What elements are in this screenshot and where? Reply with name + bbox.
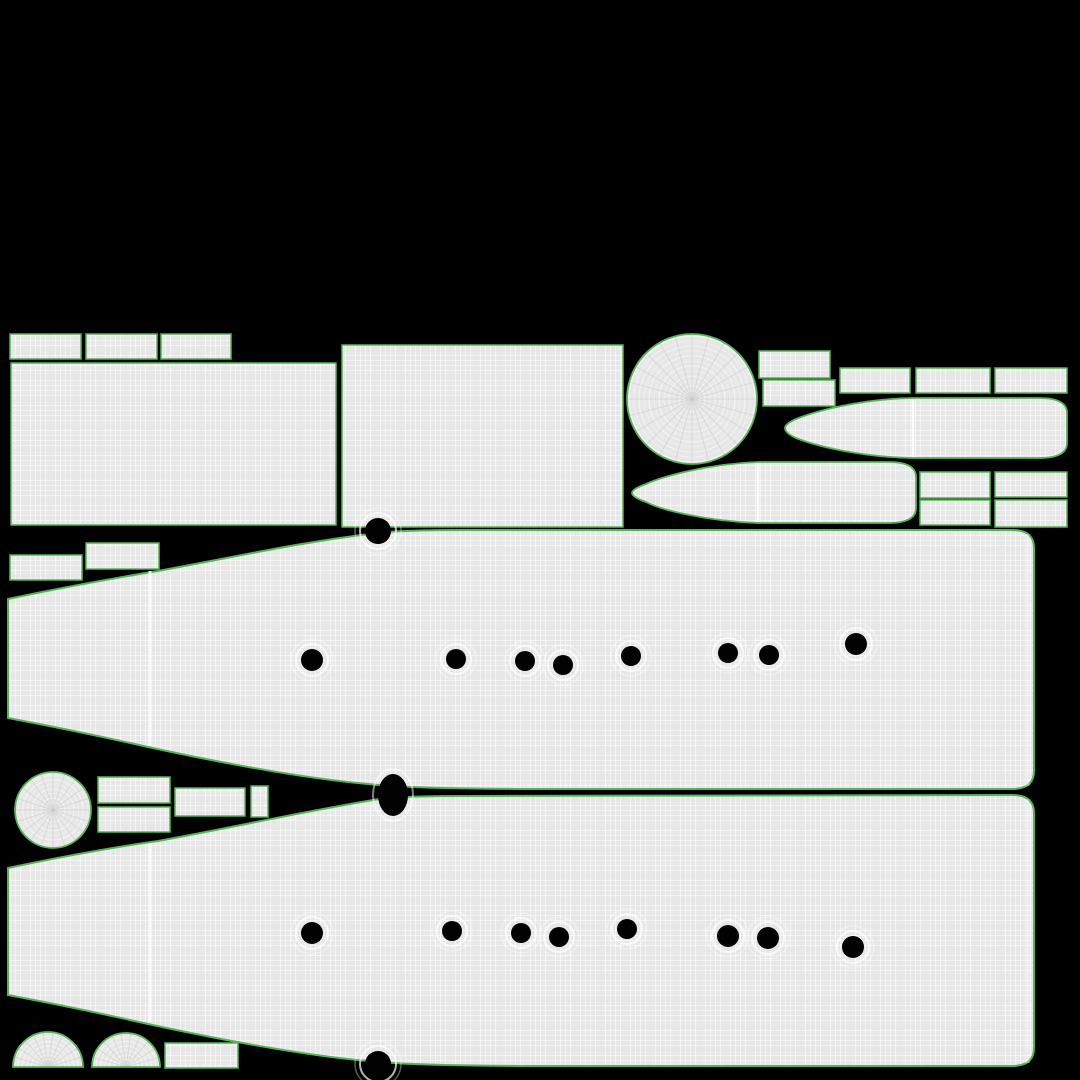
hole-upper-5	[621, 646, 641, 666]
uv-rect-top-3	[161, 334, 231, 359]
hole-upper-7	[759, 645, 779, 665]
hole-lower-6	[717, 925, 739, 947]
hole-upper-2	[446, 649, 466, 669]
uv-rect-right-2	[763, 380, 835, 406]
uv-rect-mid-left-1	[10, 555, 82, 580]
uv-rect-right-4	[916, 368, 990, 393]
uv-rect-gap-1	[98, 777, 170, 803]
uv-wireframe-sheet	[0, 0, 1080, 1080]
uv-rect-top-2	[86, 334, 157, 359]
hole-edge-1	[365, 518, 391, 544]
uv-rect-gap-small	[251, 786, 268, 817]
uv-rect-bottom-left	[165, 1043, 238, 1068]
uv-rect-top-1	[10, 334, 81, 359]
uv-rect-bottomright-3	[920, 500, 990, 525]
uv-layout-canvas	[0, 0, 1080, 1080]
uv-rect-right-1	[759, 351, 830, 378]
uv-panel-left	[11, 363, 336, 525]
uv-rect-bottomright-2	[995, 472, 1067, 497]
hole-lower-1	[301, 922, 323, 944]
hole-lower-8	[842, 936, 864, 958]
uv-panel-middle	[342, 345, 623, 527]
uv-rect-mid-left-2	[86, 543, 159, 569]
hole-lower-5	[617, 919, 637, 939]
hole-upper-8	[845, 633, 867, 655]
uv-rect-bottomright-1	[920, 472, 990, 498]
hole-upper-1	[301, 649, 323, 671]
uv-disc-small	[15, 772, 91, 848]
hole-upper-4	[553, 655, 573, 675]
hole-upper-3	[515, 651, 535, 671]
uv-disc-large	[627, 334, 757, 464]
uv-rect-right-3	[840, 368, 910, 393]
hole-lower-7	[757, 927, 779, 949]
uv-rect-bottomright-4	[995, 500, 1067, 527]
hole-edge-2	[365, 1051, 391, 1077]
hole-junction	[378, 774, 408, 816]
uv-rect-gap-3	[175, 788, 245, 816]
uv-rect-gap-2	[98, 807, 170, 832]
hole-upper-6	[718, 643, 738, 663]
hole-lower-4	[549, 927, 569, 947]
uv-rect-right-5	[995, 368, 1067, 393]
hole-lower-3	[511, 923, 531, 943]
hole-lower-2	[442, 921, 462, 941]
